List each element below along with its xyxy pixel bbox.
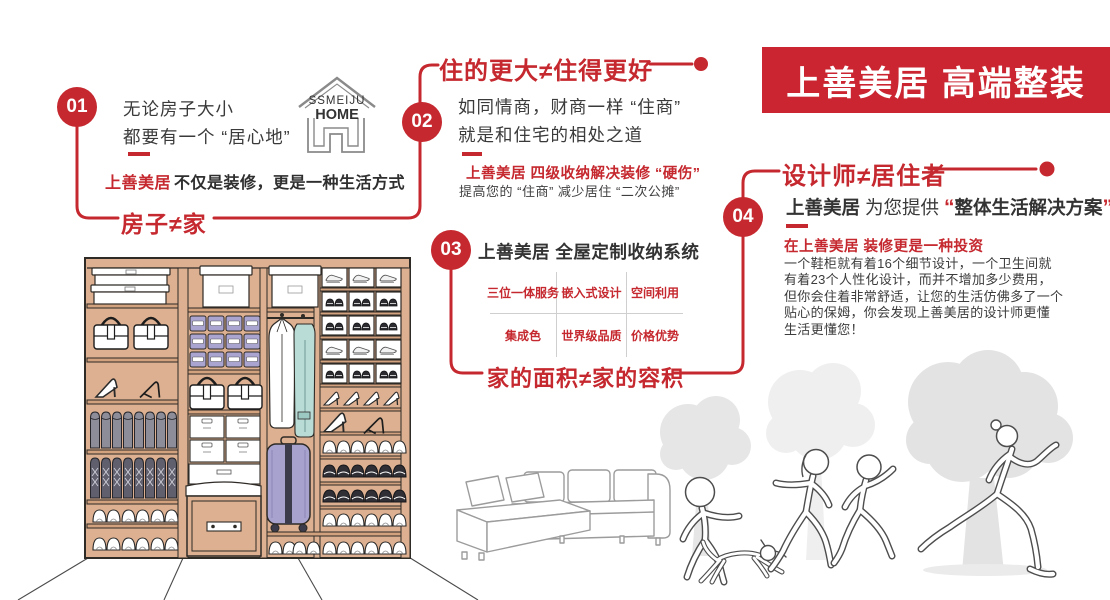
brand-banner: 上善美居 高端整装 — [762, 47, 1110, 113]
tree-silhouette-small — [660, 396, 751, 556]
s03-title: 上善美居 全屋定制收纳系统 — [478, 239, 699, 264]
s02-title: 住的更大≠住得更好 — [439, 51, 653, 86]
s01-tagline: 上善美居不仅是装修，更是一种生活方式 — [105, 169, 405, 193]
s04-paragraph: 一个鞋柜就有着16个细节设计，一个卫生间就 有着23个人性化设计，而并不增加多少… — [784, 256, 1063, 338]
tree-silhouette-mid — [766, 363, 875, 560]
s02-body-line1: 如同情商，财商一样 “住商” — [458, 94, 681, 119]
endpoint-dot — [694, 57, 708, 71]
s03-keyword: 家的面积≠家的容积 — [487, 361, 684, 393]
step-circle-04: 04 — [723, 197, 763, 237]
wardrobe-illustration — [58, 254, 422, 566]
paragraph-line: 一个鞋柜就有着16个细节设计，一个卫生间就 — [784, 256, 1063, 272]
s02-subtext: 提高您的 “住商” 减少居住 “二次公摊” — [459, 181, 680, 200]
paragraph-line: 但你会住着非常舒适，让您的生活仿佛多了一个 — [784, 289, 1063, 305]
s04-brand: 上善美居 — [786, 197, 860, 218]
tree-silhouette-large — [906, 350, 1073, 576]
s01-keyword: 房子≠家 — [121, 205, 207, 239]
s01-tagline-rest: 不仅是装修，更是一种生活方式 — [174, 175, 405, 192]
s04-solution: 整体生活解决方案 — [955, 197, 1103, 218]
s04-red-dash — [786, 224, 808, 228]
s04-title: 设计师≠居住者 — [782, 156, 946, 191]
endpoint-dot — [1040, 162, 1055, 177]
table-cell: 空间利用 — [627, 272, 683, 314]
step-circle-03: 03 — [431, 230, 471, 270]
step-circle-01: 01 — [57, 87, 97, 127]
ssmeiju-home-logo-icon: SSMEIJU HOME — [274, 76, 386, 158]
s03-feature-table: 三位一体服务 嵌入式设计 空间利用 集成色 世界级品质 价格优势 — [490, 272, 683, 357]
table-cell: 集成色 — [490, 314, 557, 357]
running-boy-figure — [683, 478, 739, 583]
step-circle-02: 02 — [402, 102, 442, 142]
paragraph-line: 有着23个人性化设计，而并不增加多少费用， — [784, 272, 1063, 288]
s04-provide-line: 上善美居为您提供“整体生活解决方案” — [786, 194, 1110, 220]
s01-heading-line1: 无论房子大小 — [123, 96, 234, 121]
floor-perspective-lines — [18, 556, 478, 600]
table-cell: 世界级品质 — [557, 314, 627, 357]
running-dog-figure — [701, 540, 786, 582]
running-girl-figure — [771, 450, 831, 570]
paragraph-line: 生活更懂您！ — [784, 322, 1063, 338]
table-cell: 嵌入式设计 — [557, 272, 627, 314]
running-woman-figure — [921, 420, 1056, 574]
s01-heading-line2: 都要有一个 “居心地” — [123, 124, 291, 149]
s01-tagline-brand: 上善美居 — [105, 175, 171, 192]
paragraph-line: 贴心的保姆，你会发现上善美居的设计师更懂 — [784, 305, 1063, 321]
s04-quote-close: ” — [1103, 196, 1110, 219]
s04-mid: 为您提供 — [865, 197, 939, 218]
s02-body-line2: 就是和住宅的相处之道 — [458, 122, 643, 147]
sofa-illustration — [457, 470, 670, 560]
s01-red-dash — [128, 152, 150, 156]
logo-brand-text: SSMEIJU — [309, 95, 366, 107]
s04-quote-open: “ — [944, 196, 955, 219]
infographic-canvas: SSMEIJU HOME 上善美居 高端整装 01 02 03 04 无论房子大… — [0, 0, 1110, 600]
running-boy2-figure — [834, 455, 893, 563]
s02-highlight: 上善美居 四级收纳解决装修 “硬伤” — [466, 162, 701, 183]
table-cell: 价格优势 — [627, 314, 683, 357]
s02-red-dash — [462, 152, 482, 156]
table-cell: 三位一体服务 — [490, 272, 557, 314]
s04-highlight: 在上善美居 装修更是一种投资 — [784, 235, 984, 256]
logo-home-text: HOME — [315, 107, 359, 123]
